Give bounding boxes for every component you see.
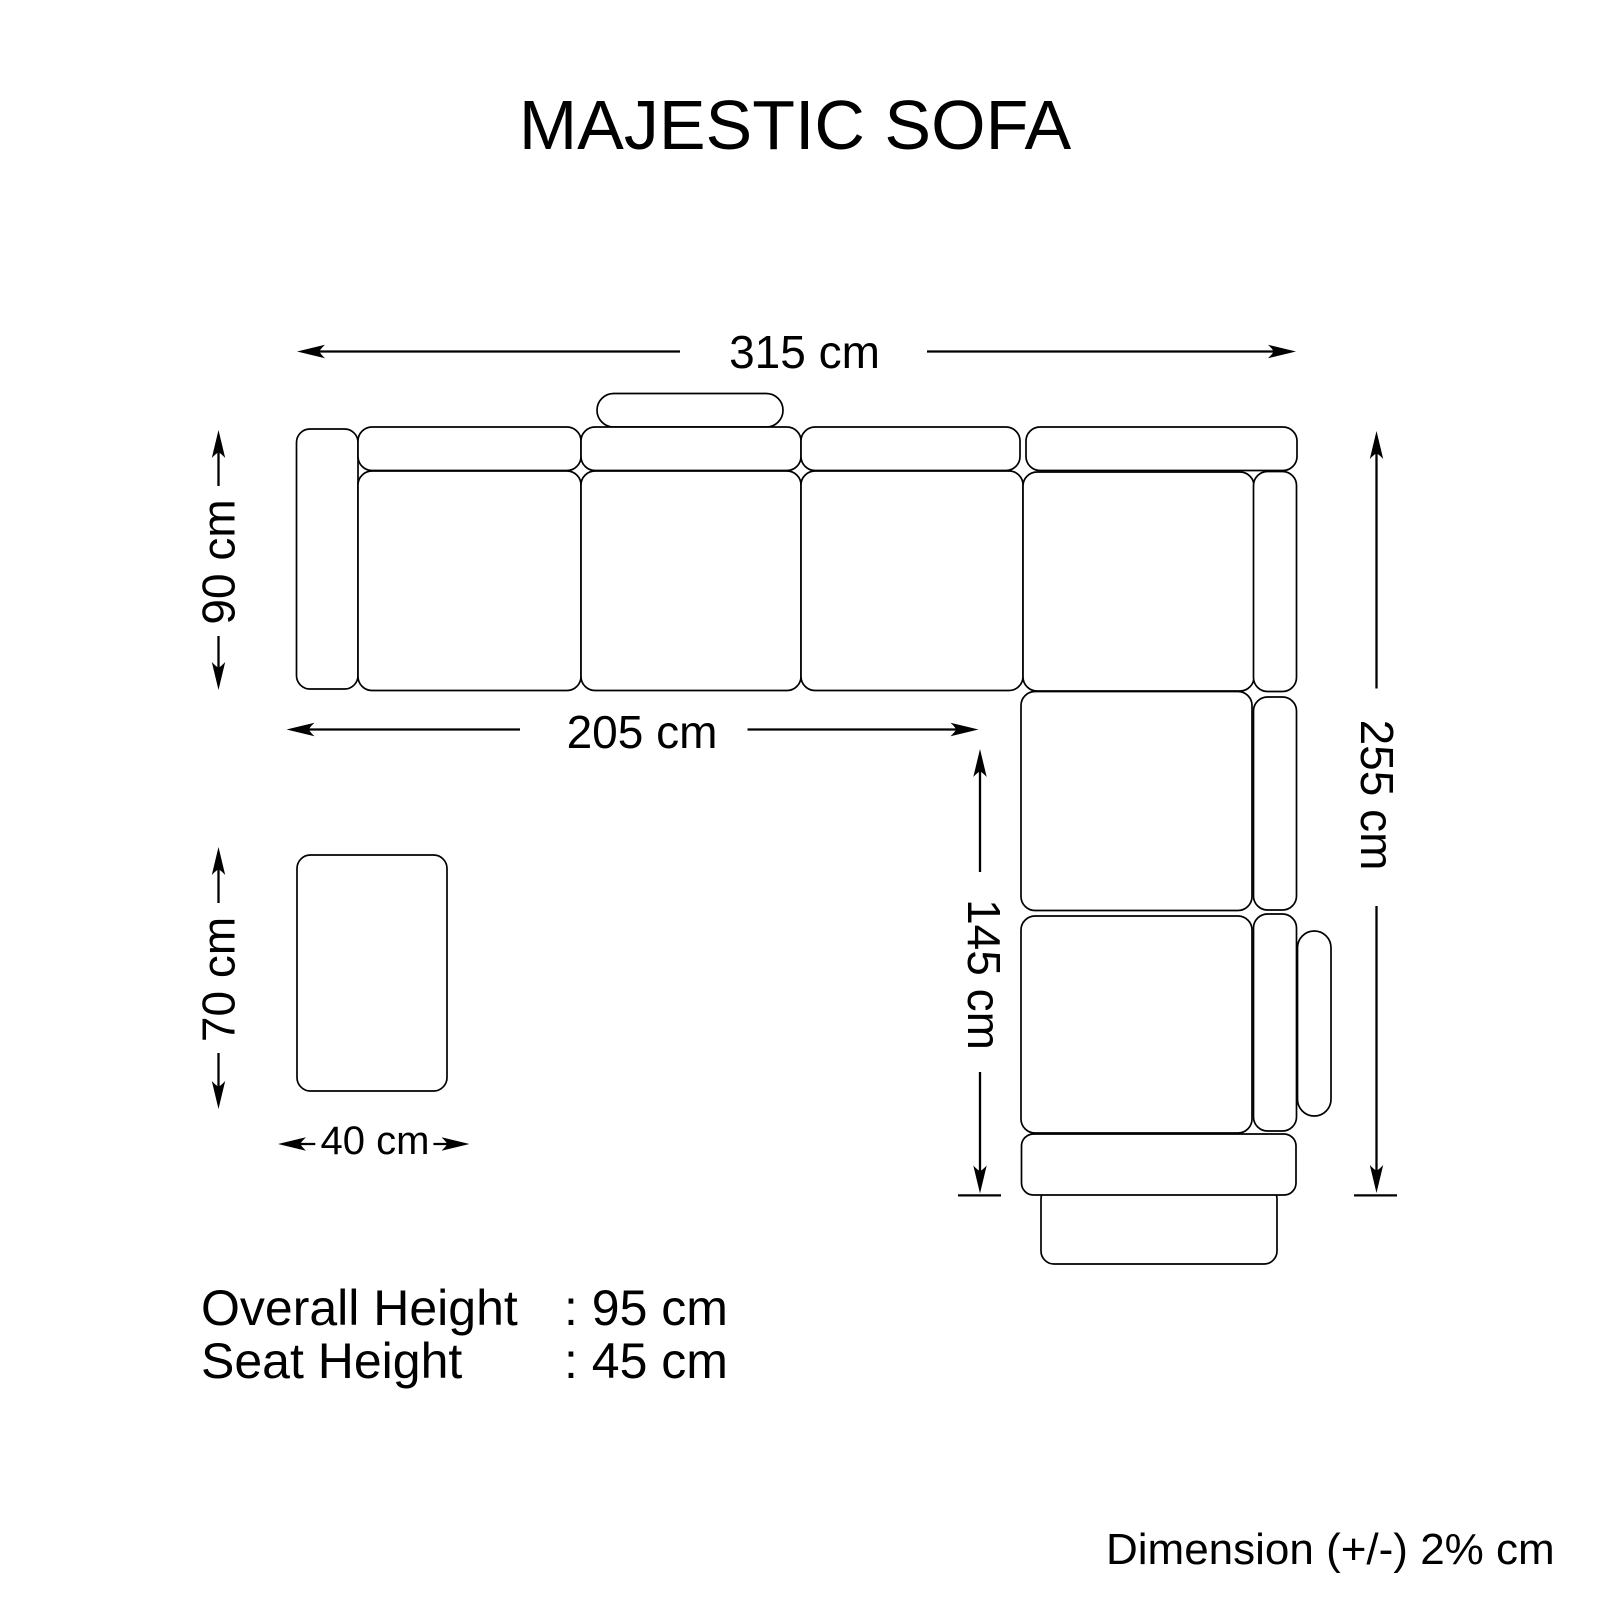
svg-text:255 cm: 255 cm <box>1351 720 1403 871</box>
svg-text:Seat Height: Seat Height <box>201 1333 462 1389</box>
svg-text:90 cm: 90 cm <box>193 499 245 624</box>
svg-text:Overall Height: Overall Height <box>201 1280 518 1336</box>
svg-text:: 45 cm: : 45 cm <box>564 1333 728 1389</box>
svg-text:70 cm: 70 cm <box>193 917 245 1042</box>
svg-text:MAJESTIC SOFA: MAJESTIC SOFA <box>519 86 1072 164</box>
svg-text:Dimension (+/-) 2% cm: Dimension (+/-) 2% cm <box>1106 1525 1555 1574</box>
svg-text:40 cm: 40 cm <box>321 1119 430 1163</box>
svg-text:315 cm: 315 cm <box>729 326 880 378</box>
svg-text:: 95 cm: : 95 cm <box>564 1280 728 1336</box>
svg-text:145 cm: 145 cm <box>958 899 1010 1050</box>
svg-text:205 cm: 205 cm <box>567 706 718 758</box>
